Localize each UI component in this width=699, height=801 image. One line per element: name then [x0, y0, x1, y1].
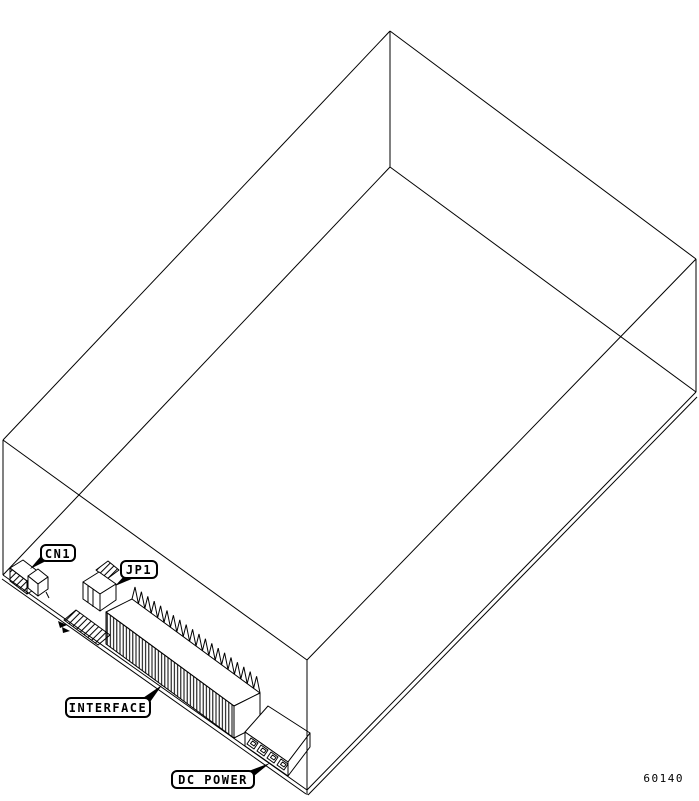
bottom-front-right-rim — [308, 397, 697, 795]
drive-drawing: CN1 JP1 INTERFACE DC POWER 60140 — [0, 0, 699, 801]
ribbon-pin-strip — [58, 610, 110, 645]
callout-cn1-label: CN1 — [45, 547, 71, 561]
callout-interface-label: INTERFACE — [69, 701, 148, 715]
top-face-back-left-edge — [3, 31, 390, 440]
callout-dc-power: DC POWER — [172, 763, 270, 788]
callout-dc-power-label: DC POWER — [178, 773, 248, 787]
callout-interface: INTERFACE — [66, 685, 162, 717]
top-face-back-right-edge — [390, 31, 696, 259]
pin1-indicator-mark-2 — [62, 627, 70, 633]
callout-cn1: CN1 — [30, 545, 75, 569]
cn1-connector — [10, 560, 49, 598]
technical-drawing-canvas: CN1 JP1 INTERFACE DC POWER 60140 — [0, 0, 699, 801]
callout-jp1: JP1 — [115, 561, 157, 586]
cn1-tick-mark — [46, 592, 49, 598]
bottom-front-right-edge — [307, 392, 696, 790]
bottom-face-back-right-edge — [390, 167, 696, 392]
top-face-front-right-edge — [307, 259, 696, 660]
figure-number: 60140 — [643, 772, 684, 785]
jp1-connector — [83, 561, 119, 611]
bottom-front-left-rim — [2, 579, 306, 794]
callout-jp1-label: JP1 — [126, 563, 152, 577]
bottom-face-back-left-edge — [3, 167, 390, 575]
